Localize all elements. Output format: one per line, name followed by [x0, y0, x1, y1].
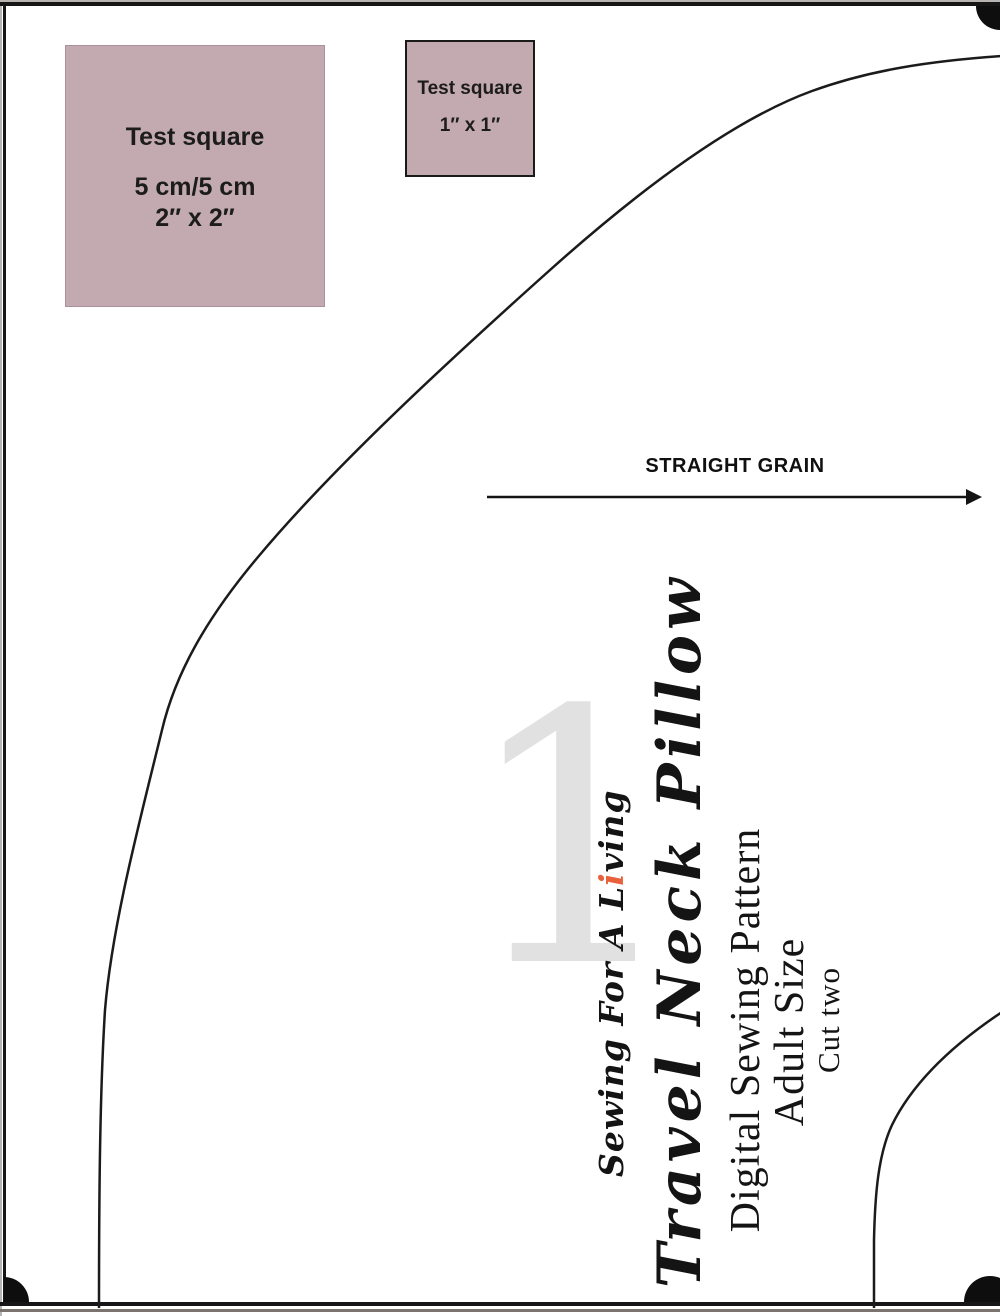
brand-name: Sewing For A Living [590, 807, 634, 1177]
registration-mark-bottom-right-icon [964, 1276, 1000, 1302]
test-square-large: Test square 5 cm/5 cm 2″ x 2″ [65, 45, 325, 307]
pattern-title: Travel Neck Pillow [640, 608, 720, 1288]
pattern-cutline-corner [874, 1012, 1000, 1308]
brand-name-prefix: Sewing For A L [592, 886, 631, 1177]
brand-name-accent-glyph: i [592, 872, 631, 886]
test-square-large-imperial: 2″ x 2″ [66, 203, 324, 234]
registration-mark-top-right-icon [976, 6, 1000, 30]
straight-grain-label: STRAIGHT GRAIN [600, 455, 870, 478]
test-square-small-title: Test square [407, 76, 533, 102]
test-square-small: Test square 1″ x 1″ [405, 40, 535, 177]
brand-name-suffix: ving [592, 790, 631, 873]
test-square-large-metric: 5 cm/5 cm [66, 172, 324, 203]
pattern-page: 1 Test square 5 cm/5 cm 2″ x 2″ Test squ… [0, 0, 1000, 1316]
test-square-large-title: Test square [66, 122, 324, 153]
straight-grain-arrow-icon [487, 489, 982, 505]
pattern-size: Adult Size [765, 922, 815, 1142]
pattern-cut-instruction: Cut two [810, 950, 848, 1090]
registration-mark-bottom-left-icon [4, 1277, 29, 1302]
test-square-small-imperial: 1″ x 1″ [407, 113, 533, 139]
pattern-subtitle: Digital Sewing Pattern [721, 795, 771, 1265]
